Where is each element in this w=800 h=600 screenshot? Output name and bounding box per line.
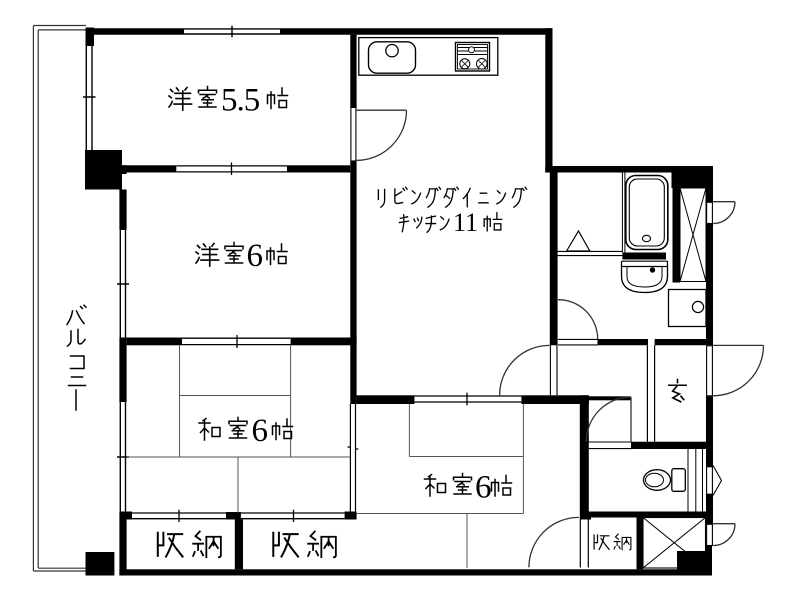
svg-text:6: 6 <box>247 238 264 274</box>
svg-text:6: 6 <box>252 413 269 449</box>
svg-text:11: 11 <box>453 208 478 237</box>
svg-text:5.5: 5.5 <box>221 83 260 119</box>
svg-text:6: 6 <box>475 470 492 506</box>
